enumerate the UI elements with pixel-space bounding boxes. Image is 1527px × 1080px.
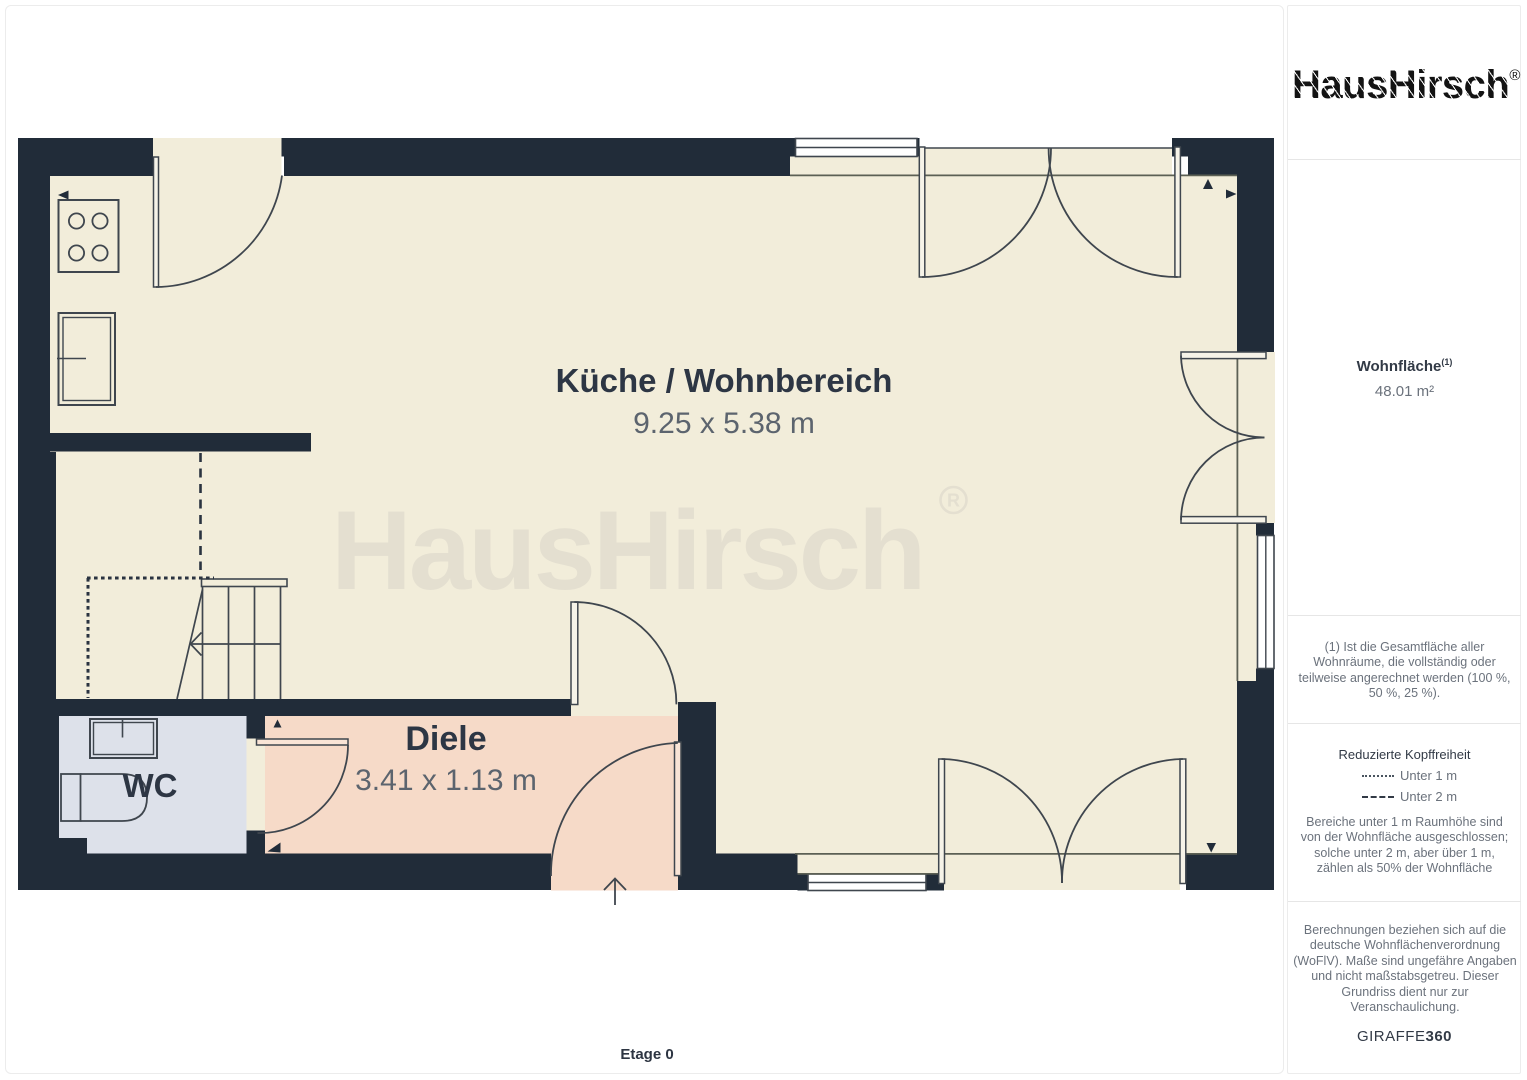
svg-text:HausHirsch: HausHirsch: [331, 488, 923, 613]
svg-text:Küche / Wohnbereich: Küche / Wohnbereich: [556, 362, 893, 399]
svg-text:3.41 x 1.13 m: 3.41 x 1.13 m: [355, 764, 537, 797]
svg-text:Diele: Diele: [405, 720, 486, 758]
svg-text:9.25 x 5.38 m: 9.25 x 5.38 m: [633, 407, 815, 440]
svg-text:WC: WC: [123, 767, 178, 804]
svg-text:R: R: [947, 491, 960, 511]
